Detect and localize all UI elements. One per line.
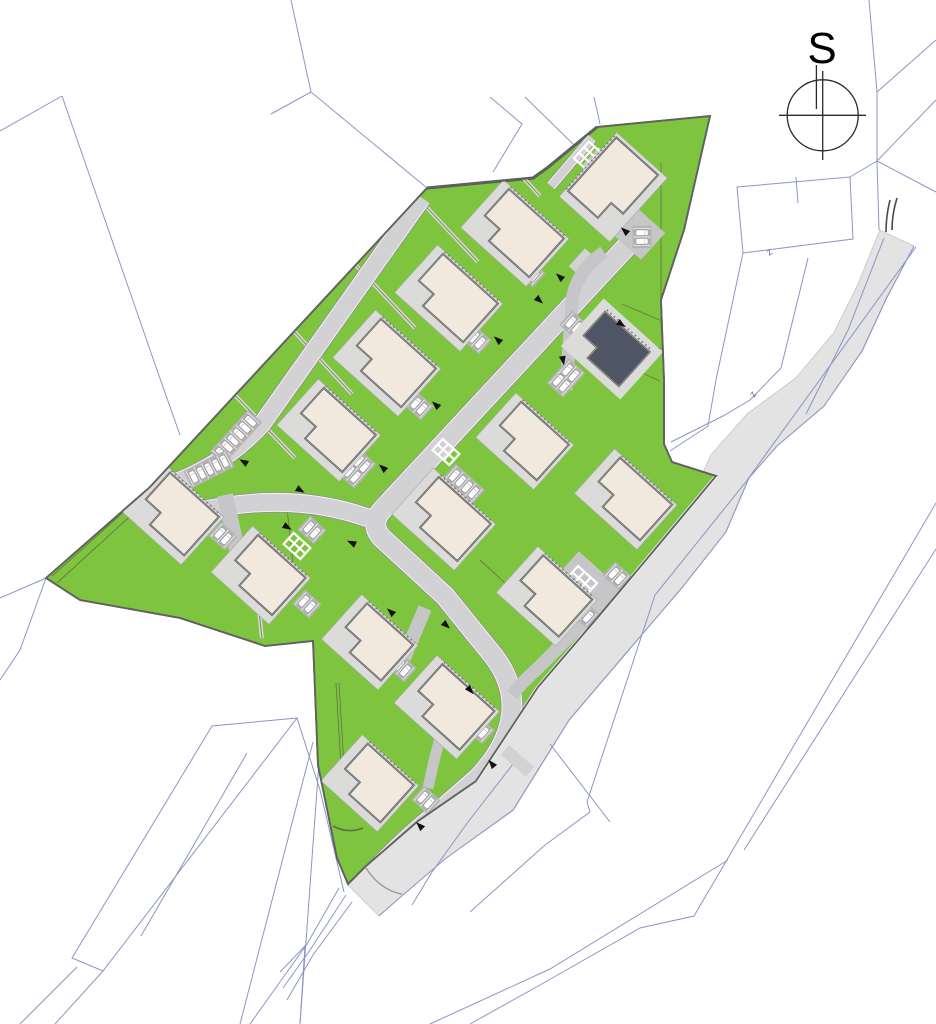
svg-text:S: S <box>807 24 836 73</box>
